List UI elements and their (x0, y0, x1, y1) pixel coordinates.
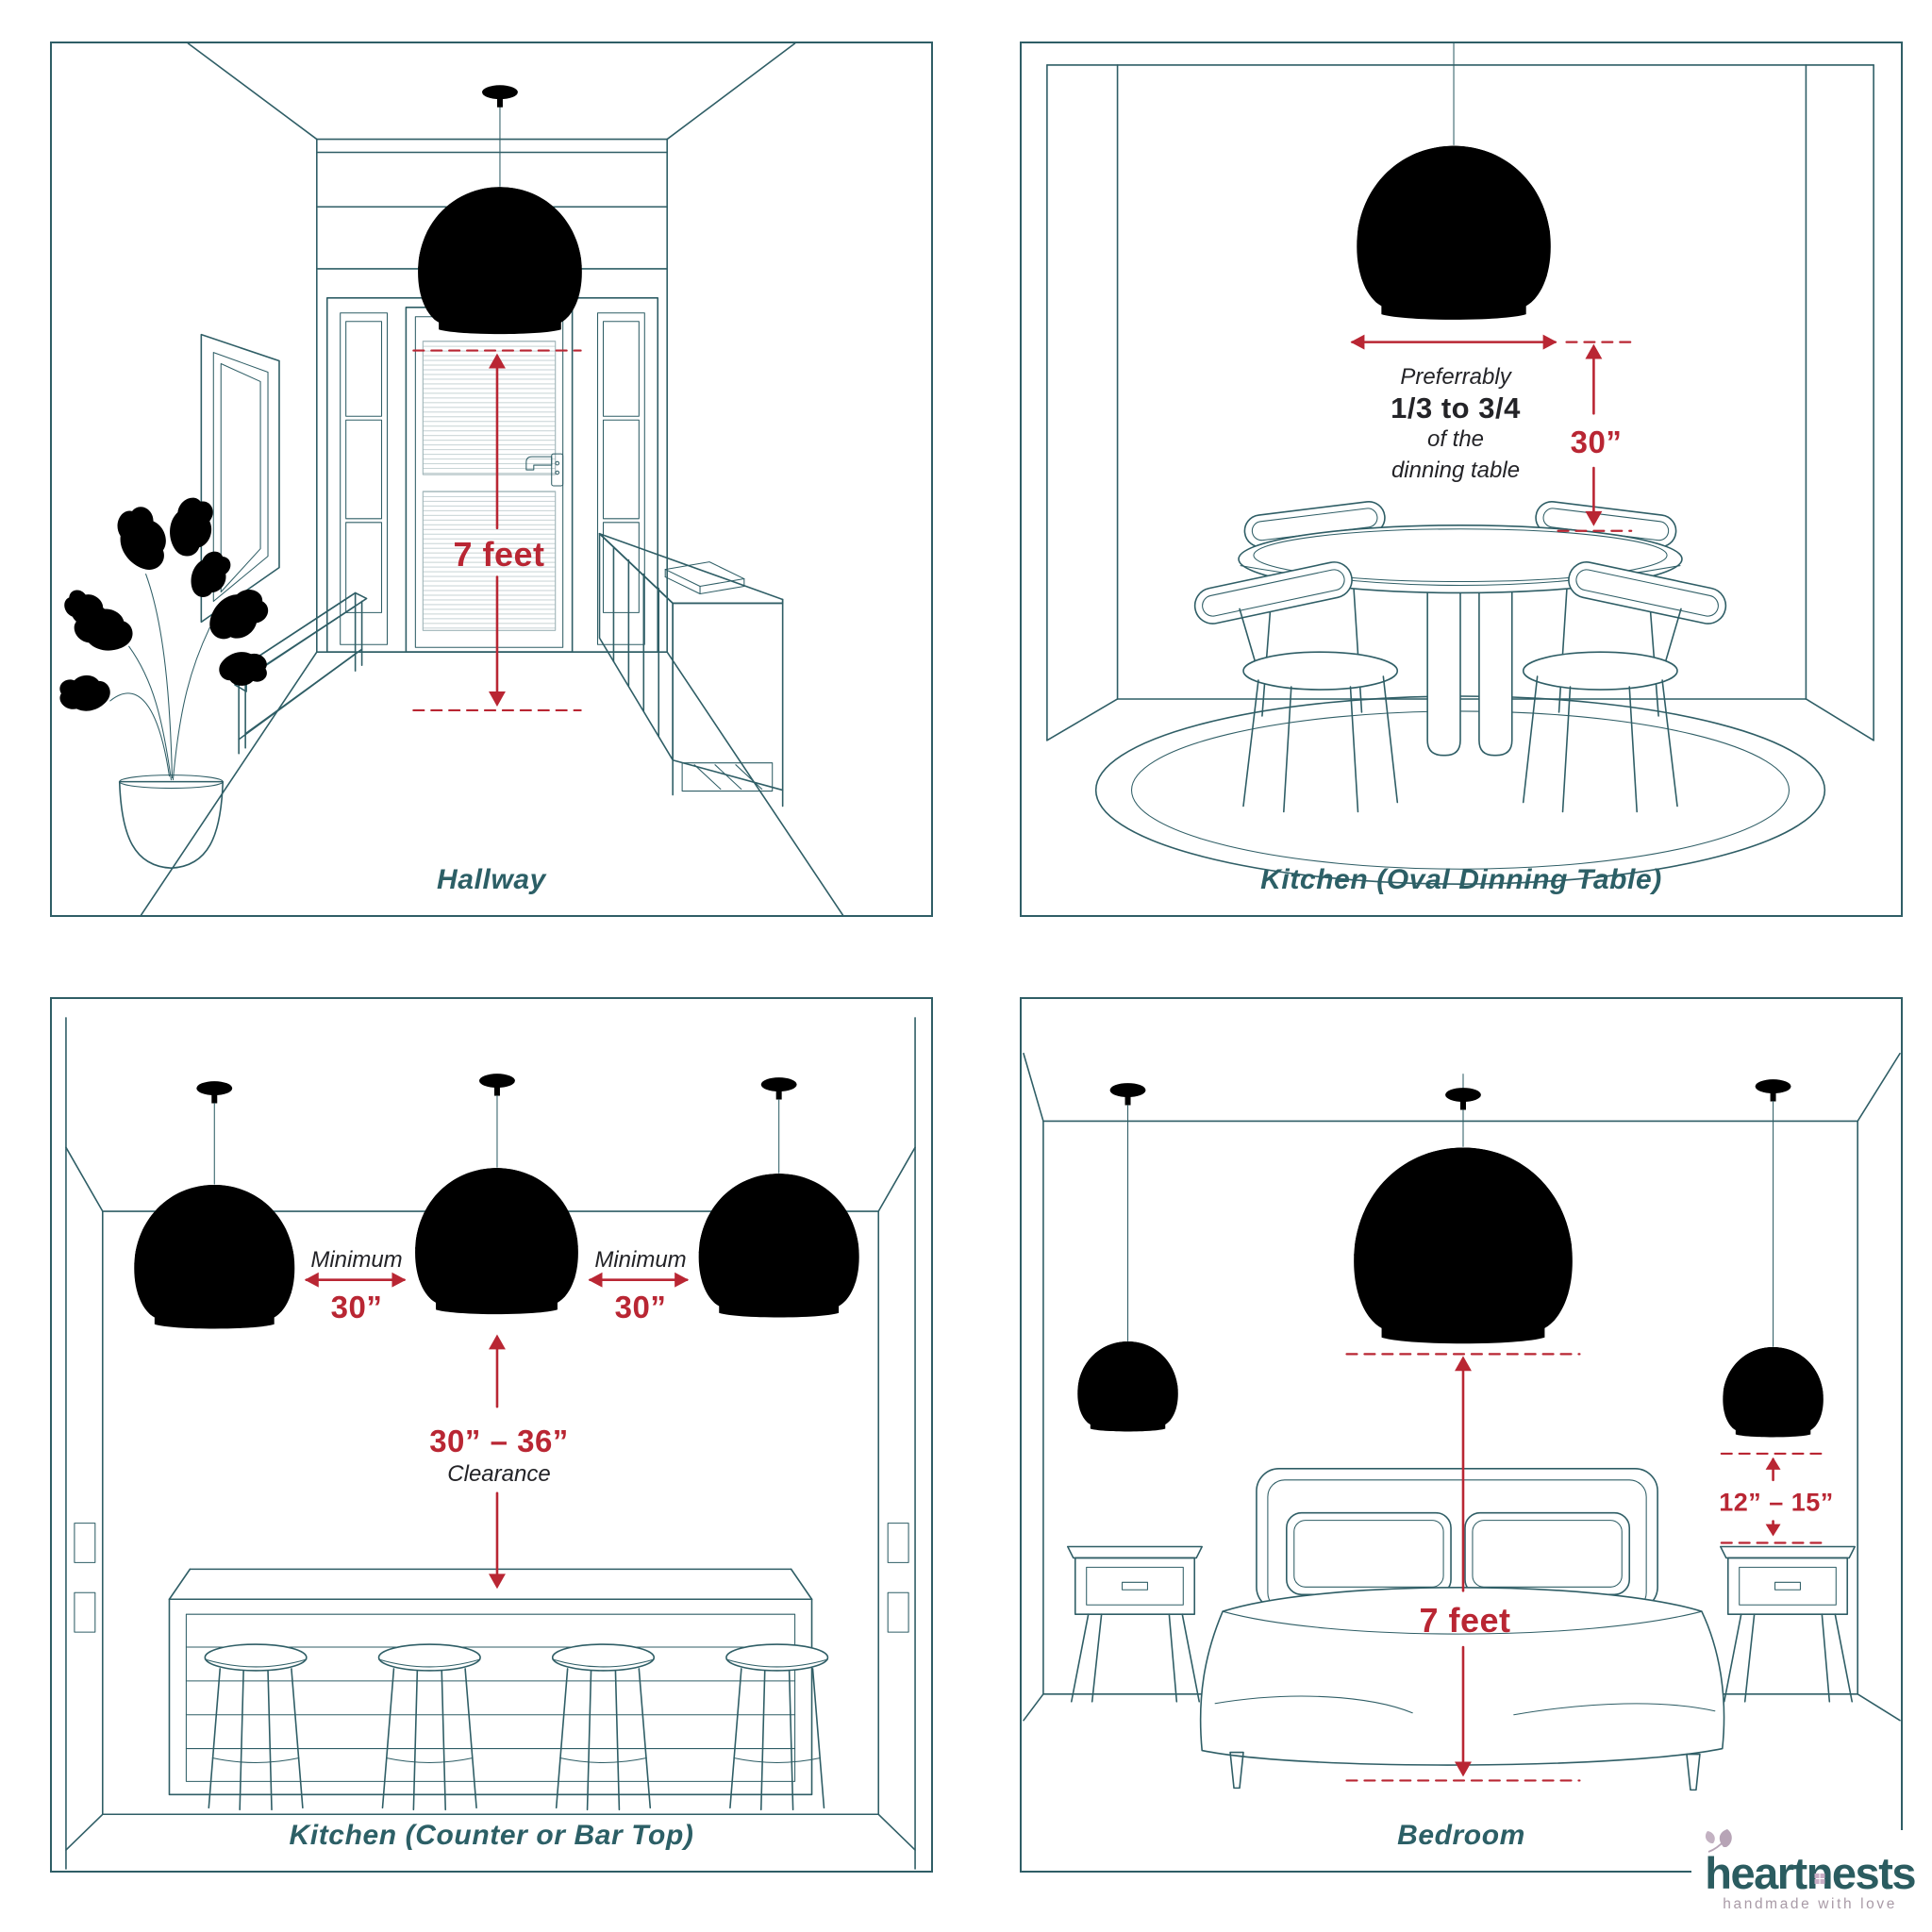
note-line-4: dinning table (1391, 455, 1521, 486)
infographic-pendant-hanging-guide: 7 feet Hallway (0, 0, 1932, 1932)
min-spacing-right-value: 30” (615, 1290, 667, 1325)
bedroom-illustration (1022, 999, 1901, 1871)
preferred-size-note: Preferrably 1/3 to 3/4 of the dinning ta… (1391, 361, 1521, 486)
bedside-drop-label: 12” – 15” (1719, 1489, 1834, 1518)
house-window-icon (1814, 1870, 1826, 1885)
hallway-height-label: 7 feet (453, 535, 544, 575)
bedroom-height-label: 7 feet (1419, 1601, 1510, 1641)
note-line-3: of the (1391, 424, 1521, 455)
panel-bedroom: 7 feet 12” – 15” Bedroom (1020, 997, 1903, 1873)
wordmark-part-3: ests (1832, 1848, 1915, 1898)
panel-kitchen-oval: Preferrably 1/3 to 3/4 of the dinning ta… (1020, 42, 1903, 917)
wordmark-house-n: n (1807, 1851, 1832, 1895)
bedroom-caption: Bedroom (1397, 1820, 1525, 1852)
hallway-illustration (52, 43, 931, 915)
brand-wordmark: heartnests (1705, 1838, 1915, 1895)
brand-tagline: handmade with love (1705, 1896, 1915, 1913)
min-spacing-right-label: Minimum (594, 1247, 686, 1274)
leaf-icon (1703, 1829, 1737, 1857)
kitchen-counter-caption: Kitchen (Counter or Bar Top) (289, 1820, 693, 1852)
panel-hallway: 7 feet Hallway (50, 42, 933, 917)
table-drop-label: 30” (1571, 425, 1623, 460)
kitchen-oval-caption: Kitchen (Oval Dinning Table) (1260, 864, 1662, 896)
clearance-label: Clearance (447, 1461, 550, 1488)
min-spacing-left-label: Minimum (310, 1247, 402, 1274)
note-line-2: 1/3 to 3/4 (1391, 392, 1521, 424)
min-spacing-left-value: 30” (331, 1290, 383, 1325)
note-line-1: Preferrably (1391, 361, 1521, 392)
hallway-caption: Hallway (437, 864, 546, 896)
brand-logo: heartnests handmade with love (1691, 1830, 1921, 1917)
panel-kitchen-counter: Minimum 30” Minimum 30” 30” – 36” Cleara… (50, 997, 933, 1873)
clearance-value: 30” – 36” (429, 1424, 569, 1459)
